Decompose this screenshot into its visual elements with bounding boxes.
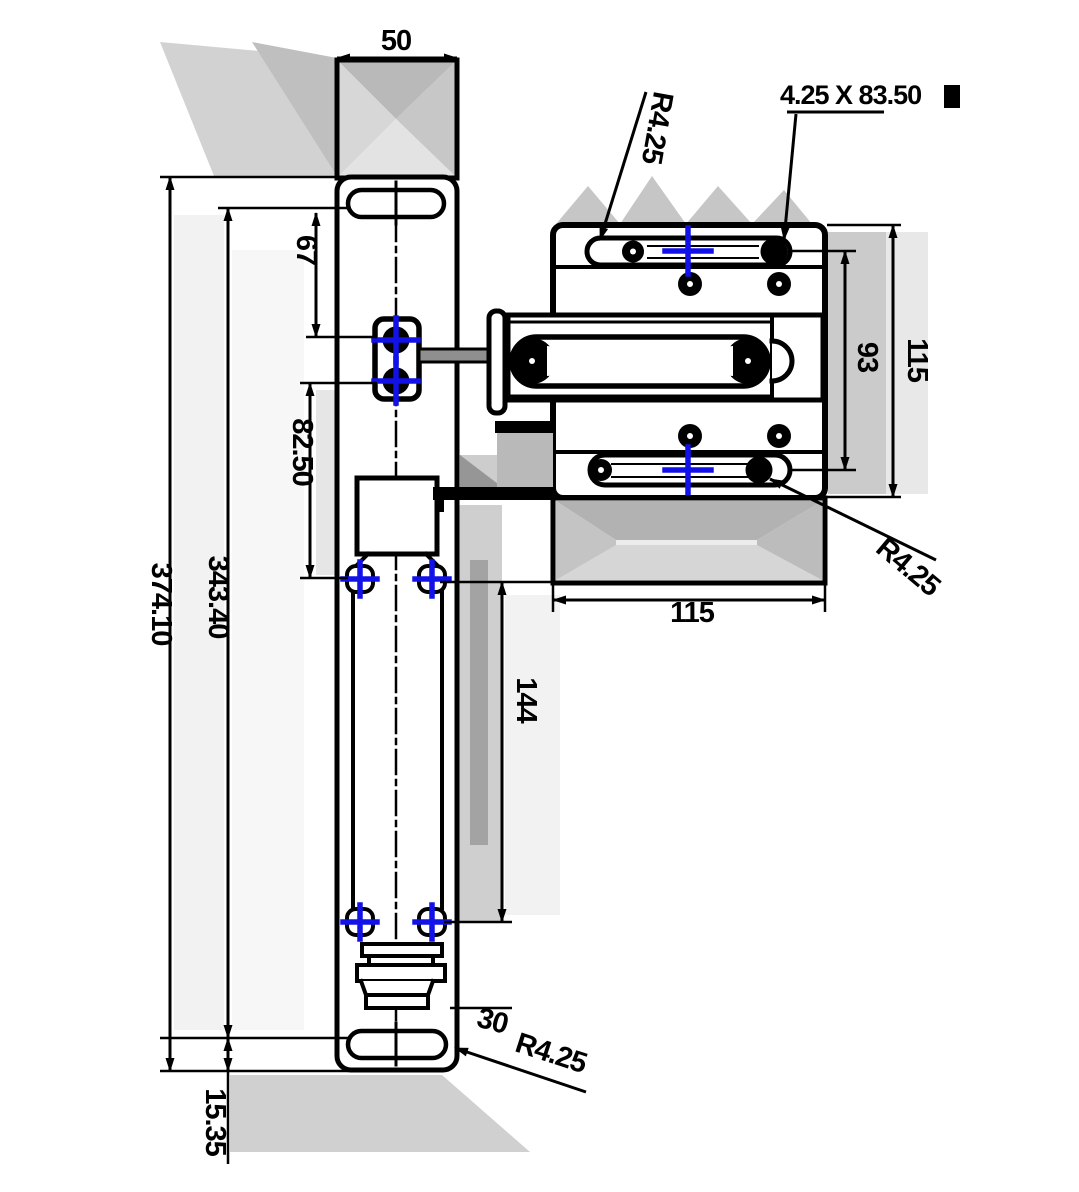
shading-polygon	[230, 1075, 530, 1152]
connecting-shaft	[419, 349, 492, 362]
hole-center-dot	[687, 281, 693, 287]
dim-label-15-35: 15.35	[199, 1088, 231, 1156]
plug-taper	[361, 981, 433, 995]
shading-band	[316, 390, 337, 575]
hole-center-dot	[630, 249, 636, 255]
clevis-plate	[489, 311, 505, 413]
port-center-dot	[529, 358, 535, 364]
side-bump	[772, 341, 792, 381]
dim-label-50: 50	[381, 25, 411, 57]
dim-label-slot-spec: 4.25 X 83.50	[780, 80, 921, 110]
dim-label-r425-bottom-right: R4.25	[870, 532, 947, 604]
cad-drawing-canvas: 50 67 82.50 374.10 343.40 15.35 144 30 R…	[0, 0, 1079, 1192]
shading-band	[470, 560, 488, 845]
cad-drawing-page: 50 67 82.50 374.10 343.40 15.35 144 30 R…	[0, 0, 1079, 1192]
dim-label-374-10: 374.10	[145, 563, 177, 646]
shading-band	[505, 595, 560, 915]
shading-band	[232, 250, 304, 1030]
dim-label-82-50: 82.50	[286, 418, 318, 486]
hole-center-dot	[776, 433, 782, 439]
hole-center-dot	[687, 433, 693, 439]
slot-hole-filled	[746, 457, 773, 484]
hole-center-dot	[598, 467, 604, 473]
middle-block	[357, 478, 437, 554]
dim-label-144: 144	[510, 677, 542, 723]
clevis-cap	[495, 421, 553, 433]
top-cross-brace-square	[337, 60, 457, 178]
slot-hole-filled	[761, 238, 788, 265]
dim-label-r425-top: R4.25	[635, 89, 679, 167]
port-center-dot	[745, 358, 751, 364]
dim-label-343-40: 343.40	[202, 556, 234, 639]
dim-label-67: 67	[290, 235, 322, 265]
plug-step	[366, 995, 428, 1008]
text-artifact-block	[944, 85, 960, 108]
dim-label-115-right: 115	[901, 338, 933, 383]
chamfer-block	[553, 498, 825, 583]
link-bar	[433, 487, 553, 500]
dim-label-115-bottom: 115	[670, 597, 715, 629]
dim-label-93: 93	[851, 342, 883, 373]
hole-center-dot	[776, 281, 782, 287]
clevis-block	[497, 433, 553, 488]
shading-polygon	[556, 176, 812, 224]
